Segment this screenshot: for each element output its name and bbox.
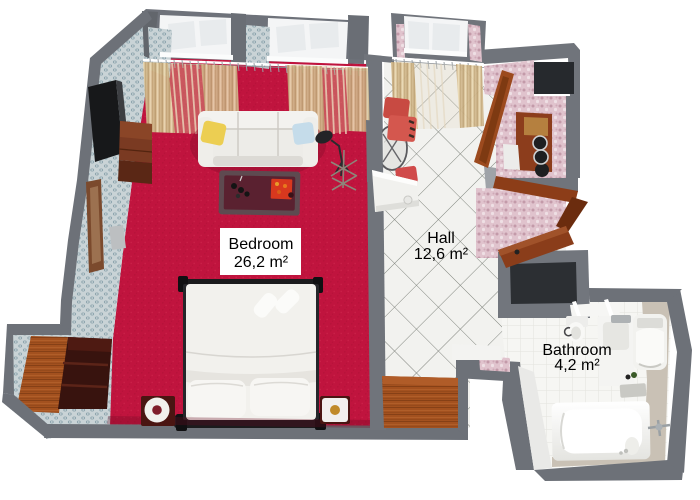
svg-text:4,2 m²: 4,2 m² xyxy=(554,357,600,374)
svg-text:12,6 m²: 12,6 m² xyxy=(414,246,469,263)
svg-text:26,2 m²: 26,2 m² xyxy=(234,254,289,271)
svg-text:Bedroom: Bedroom xyxy=(229,236,294,253)
svg-text:Hall: Hall xyxy=(427,230,455,247)
